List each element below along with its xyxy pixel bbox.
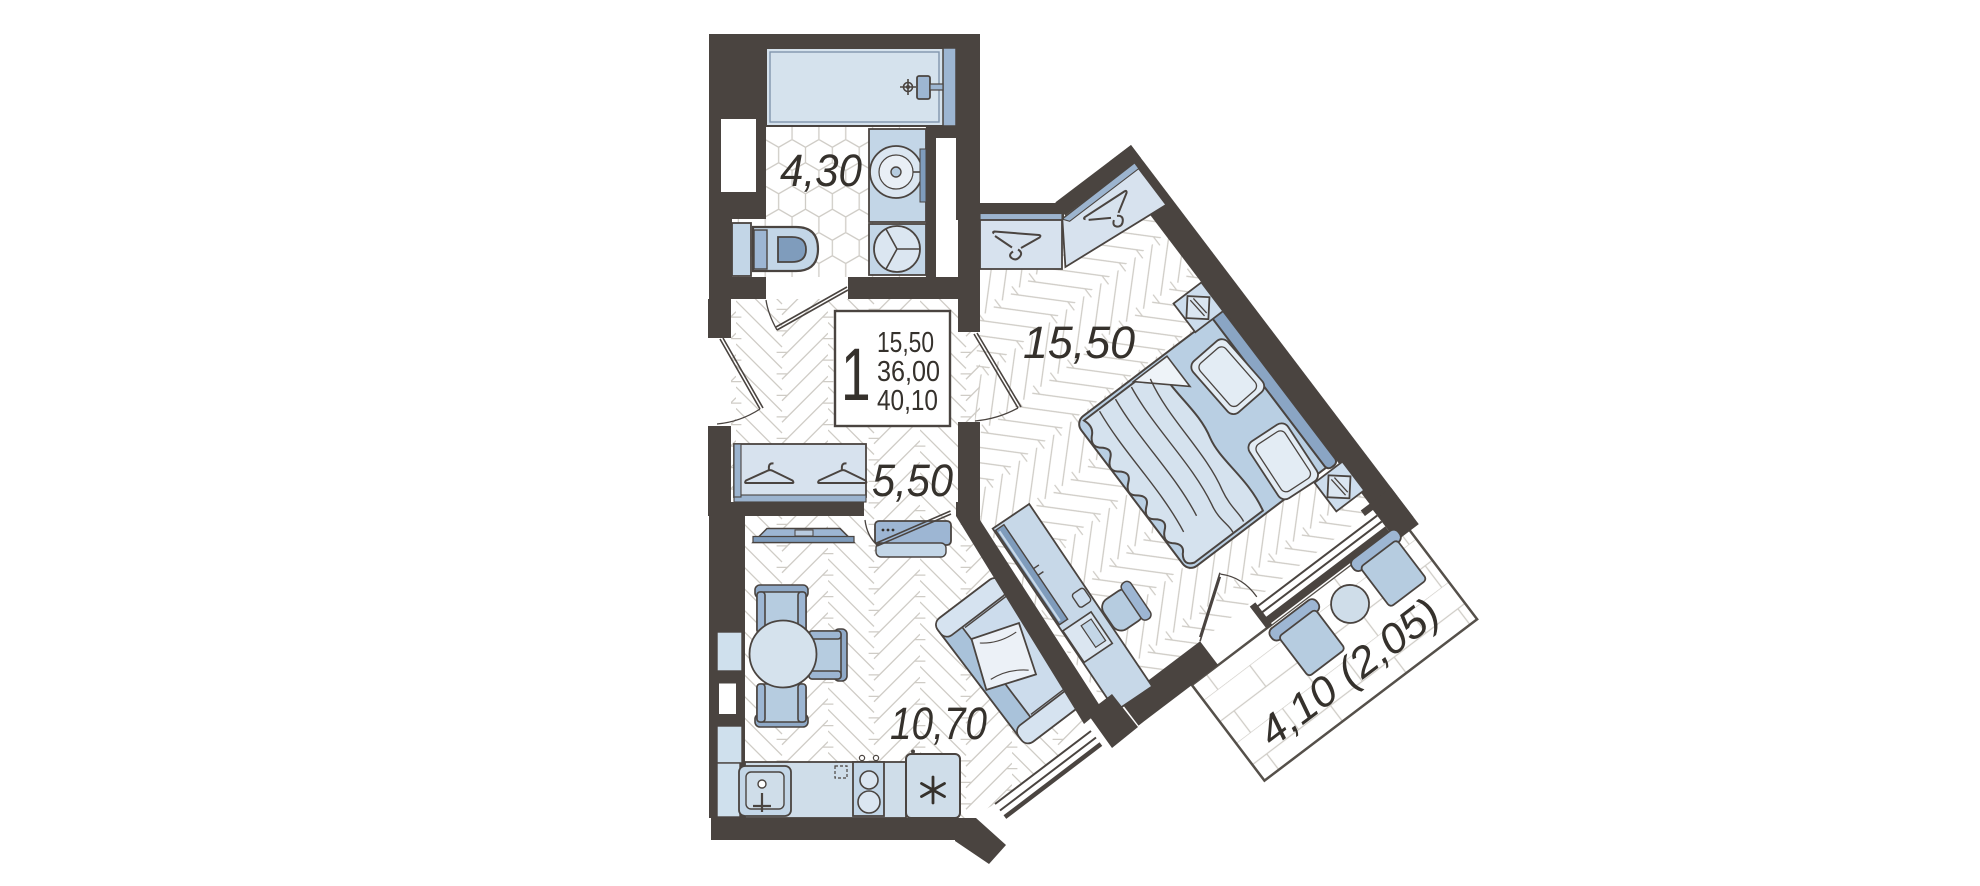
svg-text:15,50: 15,50: [877, 327, 934, 359]
svg-text:40,10: 40,10: [877, 385, 938, 417]
svg-text:36,00: 36,00: [877, 356, 940, 388]
svg-text:4,30: 4,30: [780, 145, 862, 196]
svg-text:5,50: 5,50: [872, 455, 953, 506]
svg-text:15,50: 15,50: [1023, 317, 1135, 368]
svg-text:10,70: 10,70: [890, 698, 987, 749]
svg-text:1: 1: [841, 333, 871, 416]
